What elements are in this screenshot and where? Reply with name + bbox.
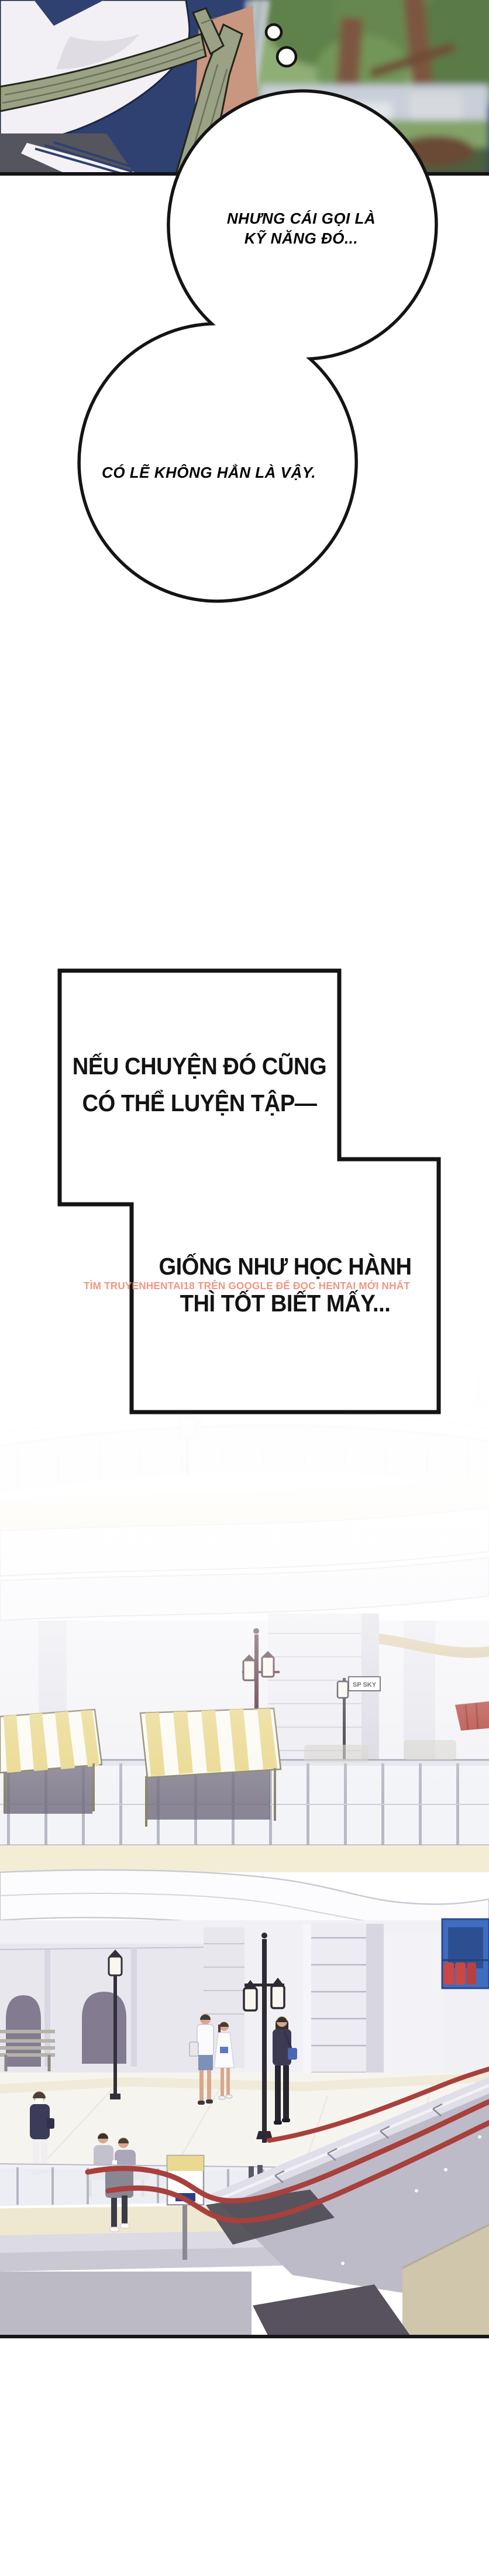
thought-bubble-1: NHƯNG CÁI GỌI LÀ KỸ NĂNG ĐÓ... <box>190 208 412 248</box>
bubble-line: CÓ LẼ KHÔNG HẲN LÀ VẬY. <box>92 463 326 482</box>
mall-panel-border-bottom <box>0 2335 489 2338</box>
mall-panel: SP SKY <box>0 1335 489 2341</box>
caption-line: CÓ THỂ LUYỆN TẬP— <box>70 1085 330 1122</box>
blue-storefront <box>442 1919 489 1988</box>
caption-box-1: NẾU CHUYỆN ĐÓ CŨNG CÓ THỂ LUYỆN TẬP— <box>70 1048 330 1122</box>
site-watermark: TÌM TRUYENHENTAI18 TRÊN GOOGLE ĐỂ ĐỌC HE… <box>81 1280 413 1292</box>
comic-page: NHƯNG CÁI GỌI LÀ KỸ NĂNG ĐÓ... CÓ LẼ KHÔ… <box>0 0 489 2576</box>
caption-line: NẾU CHUYỆN ĐÓ CŨNG <box>70 1048 330 1085</box>
caption-boxes <box>0 966 489 1429</box>
thought-bubble-2: CÓ LẼ KHÔNG HẲN LÀ VẬY. <box>92 463 326 482</box>
bubble-union-outline <box>79 91 436 601</box>
bubble-line: KỸ NĂNG ĐÓ... <box>190 228 412 248</box>
caption-box-outline <box>60 971 439 1412</box>
bubble-line: NHƯNG CÁI GỌI LÀ <box>190 208 412 228</box>
thought-dots-icon <box>266 25 296 66</box>
arch-opening <box>82 1992 126 2064</box>
thought-bubbles <box>0 0 489 644</box>
